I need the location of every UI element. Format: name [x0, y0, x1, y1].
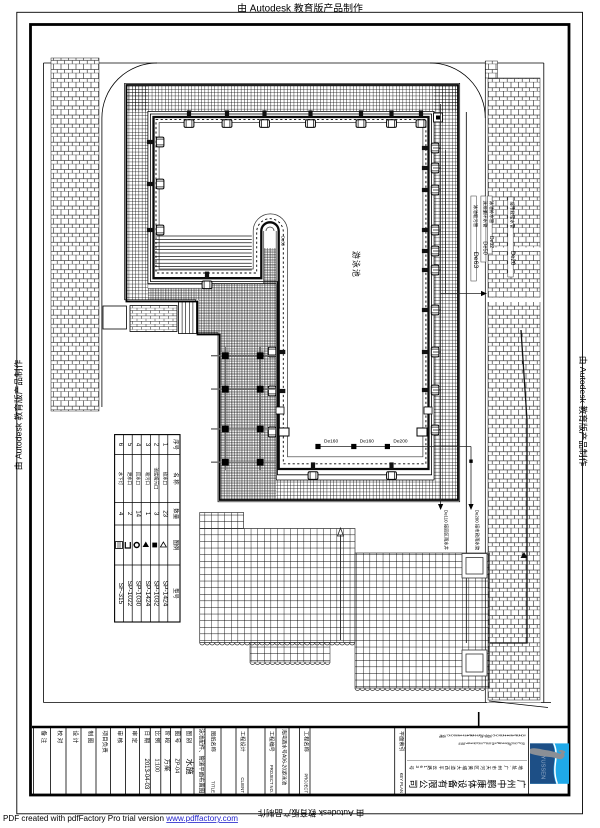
svg-text:工程编号: 工程编号 [268, 731, 276, 752]
svg-text:泄水口: 泄水口 [126, 472, 133, 485]
svg-text:SP-1030: SP-1030 [135, 581, 142, 607]
svg-text:审 核: 审 核 [116, 731, 124, 744]
svg-text:CLIENT: CLIENT [240, 777, 245, 793]
svg-text:海湾酒水号A06-20游泳池: 海湾酒水号A06-20游泳池 [281, 729, 288, 785]
svg-text:泳池配件、管道平面布置图: 泳池配件、管道平面布置图 [198, 729, 206, 794]
svg-text:序号: 序号 [172, 439, 180, 450]
svg-text:项目负责: 项目负责 [101, 731, 109, 754]
svg-text:SP-1022: SP-1022 [126, 581, 133, 607]
svg-text:设 计: 设 计 [72, 731, 80, 744]
svg-text:工程名称: 工程名称 [303, 731, 311, 752]
svg-text:泳池补水管: 泳池补水管 [488, 201, 495, 224]
svg-text:水下灯: 水下灯 [117, 472, 124, 486]
svg-text:SP-1424: SP-1424 [144, 581, 151, 607]
svg-text:De50: De50 [482, 241, 488, 254]
svg-text:TITLE: TITLE [211, 781, 216, 793]
svg-text:SP-1424: SP-1424 [161, 581, 168, 607]
svg-text:方案: 方案 [164, 759, 173, 773]
svg-text:由 Autodesk 教育版产品制作: 由 Autodesk 教育版产品制作 [578, 356, 589, 467]
svg-text:De200 接市政雨水管: De200 接市政雨水管 [474, 510, 481, 551]
svg-text:PDF created with pdfFactory Pr: PDF created with pdfFactory Pro trial ve… [3, 814, 238, 823]
svg-text:YUSSEN: YUSSEN [540, 756, 546, 780]
svg-text:PROJECT NO.: PROJECT NO. [269, 765, 274, 793]
svg-text:回水口: 回水口 [135, 472, 142, 485]
svg-text:De160: De160 [360, 439, 374, 445]
svg-text:日 期: 日 期 [143, 731, 150, 744]
svg-text:泳池吸污管: 泳池吸污管 [472, 205, 479, 228]
svg-text:23: 23 [161, 510, 167, 517]
svg-text:De32: De32 [488, 236, 494, 248]
svg-text:由 Autodesk 教育版产品制作: 由 Autodesk 教育版产品制作 [12, 359, 23, 470]
svg-text:平面索引: 平面索引 [398, 731, 406, 752]
svg-text:接市政给水管: 接市政给水管 [509, 202, 516, 229]
svg-text:图纸名称: 图纸名称 [210, 731, 218, 752]
svg-text:ZP-04: ZP-04 [174, 759, 180, 774]
svg-text:吸污口: 吸污口 [144, 472, 151, 485]
svg-text:De200: De200 [393, 439, 407, 445]
svg-text:备 注: 备 注 [40, 731, 48, 744]
svg-text:KEY PLAN: KEY PLAN [399, 773, 404, 793]
svg-text:De20: De20 [509, 251, 515, 266]
svg-text:校 对: 校 对 [56, 731, 64, 744]
svg-text:制 图: 制 图 [87, 731, 95, 744]
svg-text:图 别: 图 别 [185, 731, 193, 744]
svg-text:游泳池: 游泳池 [352, 251, 362, 278]
svg-text:SP-1032: SP-1032 [153, 581, 160, 607]
svg-text:De50: De50 [281, 236, 286, 247]
svg-text:池底吸污口: 池底吸污口 [153, 468, 160, 490]
svg-text:型号: 型号 [172, 588, 180, 599]
svg-text:14: 14 [135, 510, 141, 517]
svg-text:SF-315: SF-315 [117, 583, 124, 605]
svg-text:水施: 水施 [185, 759, 195, 775]
svg-text:名 称: 名 称 [172, 472, 180, 485]
svg-text:De110 接园区雨水井: De110 接园区雨水井 [443, 510, 450, 551]
svg-text:2013-04-03: 2013-04-03 [143, 759, 149, 790]
svg-text:司公限有备设体康鹏中州广: 司公限有备设体康鹏中州广 [408, 780, 527, 790]
svg-text:数量: 数量 [172, 508, 180, 519]
svg-text:比 例: 比 例 [154, 731, 162, 744]
svg-text:图例: 图例 [172, 540, 180, 551]
svg-text:De63: De63 [472, 252, 479, 268]
svg-text:审 定: 审 定 [131, 731, 139, 744]
svg-text:1:100: 1:100 [154, 759, 160, 773]
svg-text:图 号: 图 号 [174, 731, 182, 744]
svg-text:PROJECT: PROJECT [304, 773, 309, 793]
svg-text:De160: De160 [324, 439, 338, 445]
svg-text:工程设计: 工程设计 [239, 731, 247, 752]
svg-text:由 Autodesk 教育版产品制作: 由 Autodesk 教育版产品制作 [257, 808, 364, 818]
svg-text:给水口: 给水口 [161, 472, 168, 485]
svg-text:阶 段: 阶 段 [164, 731, 172, 744]
